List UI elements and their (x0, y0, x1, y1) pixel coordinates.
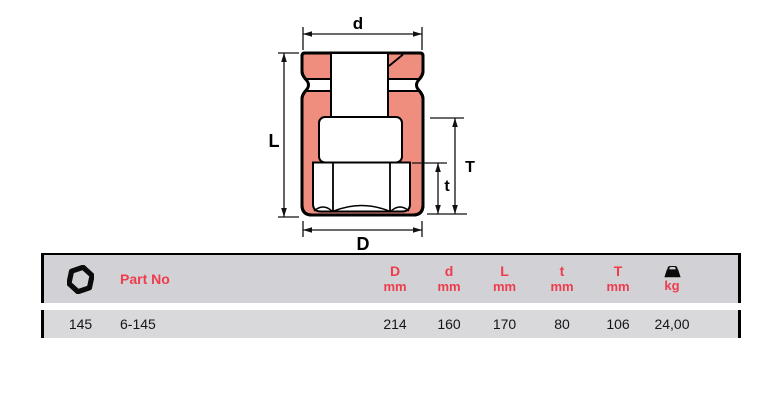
weight-icon (664, 266, 681, 278)
dimension-L (278, 53, 299, 217)
cell-t: 80 (533, 316, 591, 332)
column-unit: mm (606, 279, 629, 294)
column-header-T: T mm (591, 264, 645, 294)
t-arrow-bottom (435, 205, 441, 214)
column-header-t: t mm (533, 264, 591, 294)
label-L: L (269, 131, 280, 151)
catalog-page: d L T t (0, 0, 765, 404)
label-d: d (353, 14, 363, 33)
table-row: 145 6-145 214 160 170 80 106 24,00 (41, 310, 741, 338)
column-header-D: D mm (368, 264, 422, 294)
spec-table-header: Part No D mm d mm L mm t mm T mm (41, 253, 741, 303)
hex-nut-icon (67, 265, 94, 294)
label-t: t (444, 178, 450, 195)
column-unit: mm (383, 279, 406, 294)
label-D: D (357, 234, 370, 254)
column-letter: t (560, 264, 565, 279)
d-arrow-left (303, 31, 312, 37)
D-arrow-right (413, 227, 422, 233)
column-unit: mm (437, 279, 460, 294)
L-arrow-top (281, 53, 287, 62)
cell-kg: 24,00 (645, 316, 699, 332)
cell-D: 214 (368, 316, 422, 332)
column-letter: d (445, 264, 454, 279)
column-header-L: L mm (476, 264, 533, 294)
column-header-d: d mm (422, 264, 476, 294)
column-unit: mm (493, 279, 516, 294)
drive-channel (331, 54, 388, 117)
hex-recess (313, 163, 410, 212)
d-arrow-right (413, 31, 422, 37)
column-letter: T (614, 264, 623, 279)
column-unit: mm (550, 279, 573, 294)
hex-size-column-header (44, 265, 117, 294)
column-letter: D (390, 264, 400, 279)
table-gap (41, 303, 741, 310)
column-header-kg: kg (645, 266, 699, 292)
weight-unit: kg (664, 279, 679, 292)
T-arrow-top (452, 118, 458, 127)
part-no-header: Part No (117, 271, 368, 287)
label-T: T (465, 159, 475, 176)
cell-d: 160 (422, 316, 476, 332)
dimension-T (427, 118, 467, 214)
cell-part-no: 6-145 (117, 316, 368, 332)
spec-table: Part No D mm d mm L mm t mm T mm (41, 253, 741, 338)
L-arrow-bottom (281, 208, 287, 217)
column-letter: L (500, 264, 509, 279)
T-arrow-bottom (452, 205, 458, 214)
D-arrow-left (303, 227, 312, 233)
t-arrow-top (435, 163, 441, 172)
middle-cavity (319, 117, 402, 163)
cell-L: 170 (476, 316, 533, 332)
cell-T: 106 (591, 316, 645, 332)
cell-size: 145 (44, 316, 117, 332)
socket-cross-section-diagram: d L T t (0, 0, 765, 260)
